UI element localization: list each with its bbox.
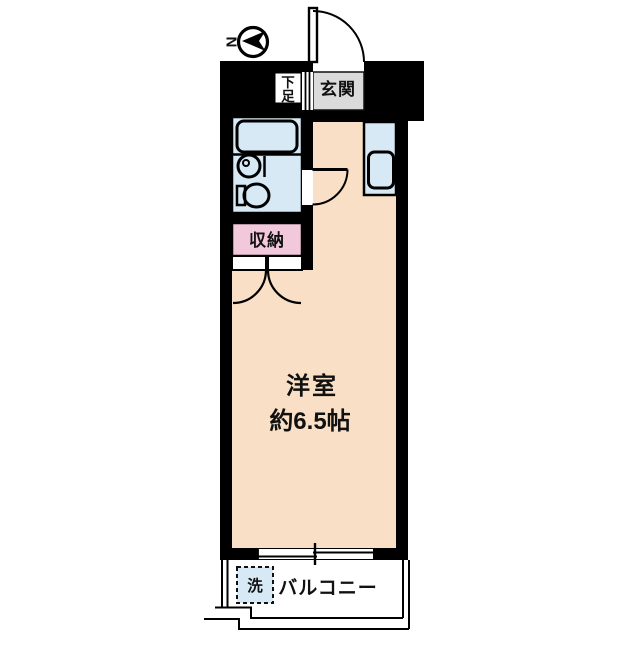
wall-bath-right-lower <box>302 205 313 270</box>
closet-door-leaf-left <box>232 256 266 270</box>
north-label: N <box>224 37 241 48</box>
wall-top-right <box>364 61 424 121</box>
entrance-door-leaf <box>309 8 317 62</box>
step-gap <box>302 72 313 110</box>
room-size-label: 約6.5帖 <box>269 407 350 435</box>
closet-label: 収納 <box>249 230 285 250</box>
shoe-cabinet-label-top: 下 <box>281 75 295 90</box>
bathroom-door-opening <box>302 170 313 205</box>
closet-door-leaf-right <box>268 256 302 270</box>
wall-right <box>396 121 408 560</box>
wall-bath-right-upper <box>302 110 313 170</box>
entrance-label: 玄関 <box>320 79 356 99</box>
wall-left <box>220 61 232 560</box>
washer-label: 洗 <box>247 576 263 595</box>
shoe-cabinet-label-bottom: 足 <box>281 89 295 104</box>
window-cap-left <box>257 549 259 559</box>
wall-under-entrance <box>313 110 365 122</box>
balcony-label: バルコニー <box>278 577 378 599</box>
floor-plan: N 玄関 下 足 収納 洋室 約6.5帖 洗 バルコニー <box>0 0 640 640</box>
floor-plan-page: N 玄関 下 足 収納 洋室 約6.5帖 洗 バルコニー <box>0 0 640 640</box>
wall-between-bath-closet <box>232 213 302 223</box>
entrance-threshold <box>313 61 364 72</box>
room-name-label: 洋室 <box>286 372 338 400</box>
window-cap-right <box>373 549 375 559</box>
entrance-step-divider <box>302 72 313 110</box>
